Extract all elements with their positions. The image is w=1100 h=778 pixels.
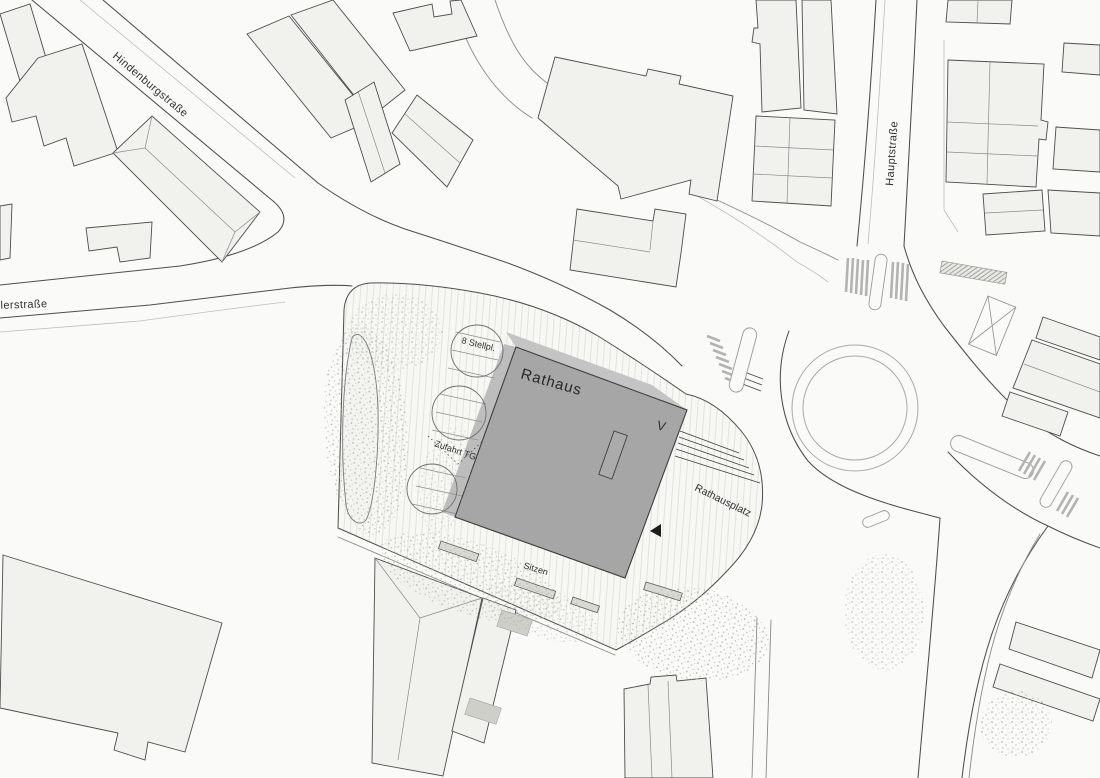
building-footprint — [802, 0, 837, 114]
building-footprint — [1048, 190, 1100, 236]
building-footprint — [946, 60, 1048, 187]
tree-canopy — [347, 294, 443, 370]
tree-canopy — [844, 554, 924, 670]
street-label-schillerstrasse: illerstraße — [0, 298, 48, 312]
building-footprint — [1053, 127, 1100, 172]
site-plan-drawing: Hindenburgstraße Hauptstraße illerstraße… — [0, 0, 1100, 778]
building-footprint — [946, 0, 1012, 24]
site-plan: Hindenburgstraße Hauptstraße illerstraße… — [0, 0, 1100, 778]
building-footprint — [1062, 43, 1100, 75]
tree-canopy — [980, 691, 1052, 757]
building-footprint — [0, 204, 12, 260]
building-footprint — [752, 116, 835, 206]
